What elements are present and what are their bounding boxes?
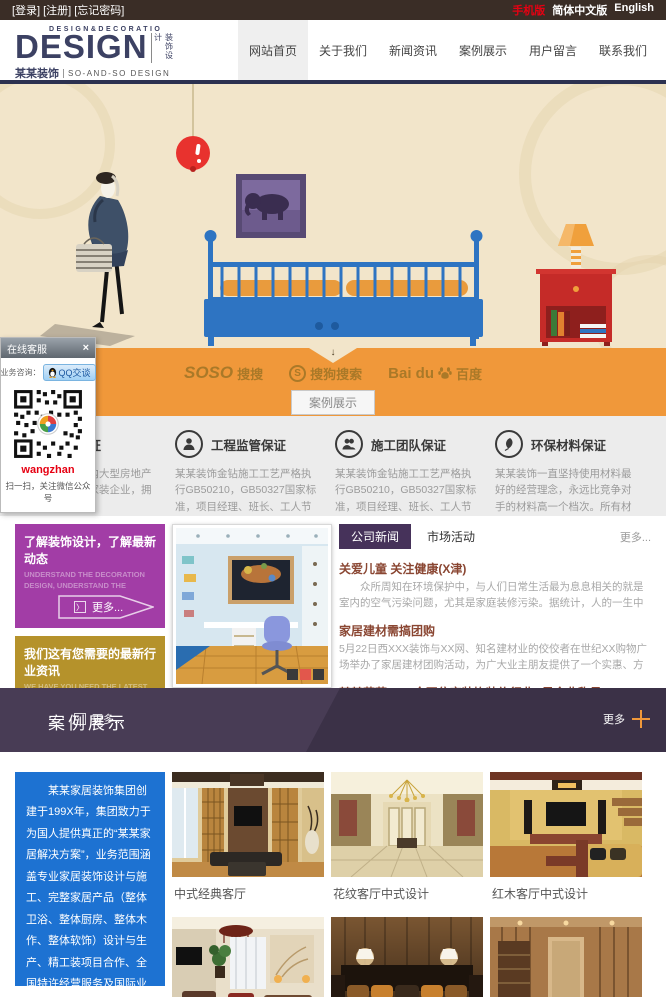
case-caption[interactable]: 花纹客厅中式设计 bbox=[333, 887, 483, 901]
account-links: [登录] [注册] [忘记密码] bbox=[12, 2, 124, 18]
more-label: 更多... bbox=[92, 711, 123, 727]
picture-frame-graphic bbox=[236, 174, 306, 238]
hero-illustration bbox=[0, 84, 666, 348]
promo-design-banner[interactable]: 了解装饰设计，了解最新动态 UNDERSTAND THE DECORATION … bbox=[15, 524, 165, 628]
company-intro-text: 某某家居装饰集团创建于199X年，集团致力于为国人提供真正的“某某家居解决方案”… bbox=[26, 781, 154, 986]
page: [登录] [注册] [忘记密码] 手机版 简体中文版 English DESIG… bbox=[0, 0, 666, 997]
close-icon[interactable]: × bbox=[83, 342, 89, 354]
slider-prev-button[interactable] bbox=[287, 669, 298, 680]
promo-title: 了解装饰设计，了解最新动态 bbox=[24, 533, 156, 567]
feature-supervision: 工程监管保证 某某装饰金钻施工工艺严格执行GB50210，GB50327国家标准… bbox=[175, 430, 321, 516]
slider-next-button[interactable] bbox=[313, 669, 324, 680]
engineer-icon bbox=[175, 430, 203, 458]
down-arrow-icon: ↓ bbox=[331, 347, 336, 358]
news-column: 公司新闻 市场活动 更多... 关爱儿童 关注健康(X津) 众所周知在环境保护中… bbox=[339, 524, 651, 688]
qr-code bbox=[1, 388, 95, 460]
nav-item-home[interactable]: 网站首页 bbox=[238, 20, 308, 80]
feature-title: 工程监管保证 bbox=[211, 435, 286, 454]
news-title-link[interactable]: 关爱儿童 关注健康(X津) bbox=[339, 560, 651, 577]
team-icon bbox=[335, 430, 363, 458]
qr-site-name: wangzhan bbox=[1, 464, 95, 476]
hero-dot-1[interactable] bbox=[315, 322, 323, 330]
hero-slider-dots bbox=[315, 322, 339, 330]
case-column: 花纹客厅中式设计 bbox=[331, 772, 483, 997]
chat-panel: 在线客服 × 业务咨询： QQ交谈 bbox=[0, 337, 96, 513]
search-band: ↓ SOSO 搜搜 S 搜狗搜索 Bai du 百度 bbox=[0, 348, 666, 416]
nav-item-messages[interactable]: 用户留言 bbox=[518, 20, 588, 80]
logo-cn-name: 某某装饰 bbox=[15, 65, 59, 81]
case-more-link[interactable]: 更多 bbox=[603, 710, 650, 728]
promo-title: 我们这有您需要的最新行业资讯 bbox=[24, 645, 156, 679]
language-links: 手机版 简体中文版 English bbox=[512, 2, 654, 18]
topbar: [登录] [注册] [忘记密码] 手机版 简体中文版 English bbox=[0, 0, 666, 20]
logo-en-name: SO-AND-SO DESIGN bbox=[63, 69, 170, 78]
baidu-paw-icon bbox=[438, 366, 452, 380]
sogou-cn-text: 搜狗搜索 bbox=[310, 364, 362, 383]
feature-eco: 环保材料保证 某某装饰一直坚持使用材料最好的经营理念，永远比竞争对手的材料高一个… bbox=[495, 430, 641, 516]
hero-dot-2[interactable] bbox=[331, 322, 339, 330]
company-intro-box: 某某家居装饰集团创建于199X年，集团致力于为国人提供真正的“某某家居解决方案”… bbox=[15, 772, 165, 986]
news-title-link[interactable]: 家居建材需搞团购 bbox=[339, 622, 651, 639]
hero-banner bbox=[0, 84, 666, 348]
case-image-classic-living[interactable] bbox=[172, 772, 324, 877]
news-more-link[interactable]: 更多... bbox=[620, 529, 651, 545]
logo[interactable]: DESIGN&DECORATIO DESIGN 装饰设计 某某装饰 SO-AND… bbox=[15, 20, 245, 81]
main-nav: 网站首页 关于我们 新闻资讯 案例展示 用户留言 联系我们 bbox=[238, 20, 658, 80]
soso-text: SOSO bbox=[184, 363, 233, 383]
logo-vertical-text: 装饰设计 bbox=[151, 33, 175, 63]
news-item: 家居建材需搞团购 5月22日西XXX装饰与XX网、知名建材业的佼佼者在世纪XX购… bbox=[339, 622, 651, 673]
baidu-cn-text: 百度 bbox=[456, 364, 482, 383]
qq-penguin-icon bbox=[48, 367, 57, 378]
slider-pagination bbox=[287, 669, 324, 680]
chevron-right-icon: 〉 bbox=[74, 601, 86, 613]
tab-market-activity[interactable]: 市场活动 bbox=[427, 528, 475, 545]
case-image-wood-bedroom[interactable] bbox=[331, 917, 483, 997]
news-tabs: 公司新闻 市场活动 更多... bbox=[339, 524, 651, 549]
features-row: 实力保证 某某装饰是由国内大型房地产机构投资的大型家装企业，拥有雄厚的经济实 工… bbox=[0, 416, 666, 516]
study-room-image bbox=[176, 528, 328, 684]
case-image-chandelier-living[interactable] bbox=[172, 917, 324, 997]
login-link[interactable]: [登录] bbox=[12, 2, 40, 18]
chat-panel-title: 在线客服 bbox=[7, 341, 47, 356]
nav-item-cases[interactable]: 案例展示 bbox=[448, 20, 518, 80]
nav-item-contact[interactable]: 联系我们 bbox=[588, 20, 658, 80]
soso-logo[interactable]: SOSO 搜搜 bbox=[184, 363, 263, 383]
case-column: 红木客厅中式设计 bbox=[490, 772, 642, 997]
feature-text: 某某装饰金钻施工工艺严格执行GB50210，GB50327国家标准，项目经理、班… bbox=[335, 466, 481, 515]
baidu-text: Bai du bbox=[388, 365, 434, 382]
promo-more-button[interactable]: 〉 更多... bbox=[58, 595, 154, 619]
plus-icon bbox=[632, 710, 650, 728]
wechat-scan-tip: 扫一扫，关注微信公众号 bbox=[3, 480, 93, 504]
soso-cn-text: 搜搜 bbox=[237, 364, 263, 383]
case-image-wood-corridor[interactable] bbox=[490, 917, 642, 997]
header: DESIGN&DECORATIO DESIGN 装饰设计 某某装饰 SO-AND… bbox=[0, 20, 666, 84]
logo-main-text: DESIGN bbox=[15, 33, 148, 61]
case-column: 中式经典客厅 bbox=[172, 772, 324, 997]
cases-grid: 某某家居装饰集团创建于199X年，集团致力于为国人提供真正的“某某家居解决方案”… bbox=[0, 752, 666, 997]
more-label: 更多... bbox=[92, 599, 123, 615]
more-label: 更多 bbox=[603, 711, 625, 727]
feature-text: 某某装饰一直坚持使用材料最好的经营理念，永远比竞争对手的材料高一个档次。所有材料… bbox=[495, 466, 641, 515]
chevron-right-icon: 〉 bbox=[74, 713, 86, 725]
register-link[interactable]: [注册] bbox=[43, 2, 71, 18]
feature-title: 施工团队保证 bbox=[371, 435, 446, 454]
forgot-password-link[interactable]: [忘记密码] bbox=[74, 2, 124, 18]
nav-item-about[interactable]: 关于我们 bbox=[308, 20, 378, 80]
consult-label: 业务咨询： bbox=[1, 367, 41, 378]
nav-item-news[interactable]: 新闻资讯 bbox=[378, 20, 448, 80]
case-image-redwood-living[interactable] bbox=[490, 772, 642, 877]
feature-team: 施工团队保证 某某装饰金钻施工工艺严格执行GB50210，GB50327国家标准… bbox=[335, 430, 481, 516]
case-caption[interactable]: 红木客厅中式设计 bbox=[492, 887, 642, 901]
baidu-logo[interactable]: Bai du 百度 bbox=[388, 364, 482, 383]
qq-chat-button[interactable]: QQ交谈 bbox=[43, 364, 96, 381]
promo-subtitle: UNDERSTAND THE DECORATION DESIGN, UNDERS… bbox=[24, 570, 156, 591]
mobile-version-link[interactable]: 手机版 bbox=[512, 2, 545, 18]
news-item: 关爱儿童 关注健康(X津) 众所周知在环境保护中，与人们日常生活最为息息相关的就… bbox=[339, 560, 651, 611]
case-show-button[interactable]: 案例展示 bbox=[291, 390, 375, 415]
case-caption[interactable]: 中式经典客厅 bbox=[174, 887, 324, 901]
sogou-s-icon: S bbox=[289, 365, 306, 382]
sogou-logo[interactable]: S 搜狗搜索 bbox=[289, 364, 362, 383]
middle-section: 了解装饰设计，了解最新动态 UNDERSTAND THE DECORATION … bbox=[0, 516, 666, 688]
simplified-chinese-link[interactable]: 简体中文版 bbox=[552, 2, 607, 18]
feature-title: 环保材料保证 bbox=[531, 435, 606, 454]
news-body: 5月22日西XXX装饰与XX网、知名建材业的佼佼者在世纪XX购物广场举办了家居建… bbox=[339, 642, 651, 673]
case-image-pattern-hall[interactable] bbox=[331, 772, 483, 877]
showcase-slider[interactable] bbox=[172, 524, 332, 688]
slider-current-button[interactable] bbox=[300, 669, 311, 680]
leaf-icon bbox=[495, 430, 523, 458]
news-body: 众所周知在环境保护中，与人们日常生活最为息息相关的就是室内的空气污染问题，尤其是… bbox=[339, 580, 651, 611]
qq-button-label: QQ交谈 bbox=[59, 366, 91, 379]
feature-text: 某某装饰金钻施工工艺严格执行GB50210，GB50327国家标准，项目经理、班… bbox=[175, 466, 321, 515]
tab-company-news[interactable]: 公司新闻 bbox=[339, 524, 411, 549]
english-link[interactable]: English bbox=[614, 2, 654, 18]
